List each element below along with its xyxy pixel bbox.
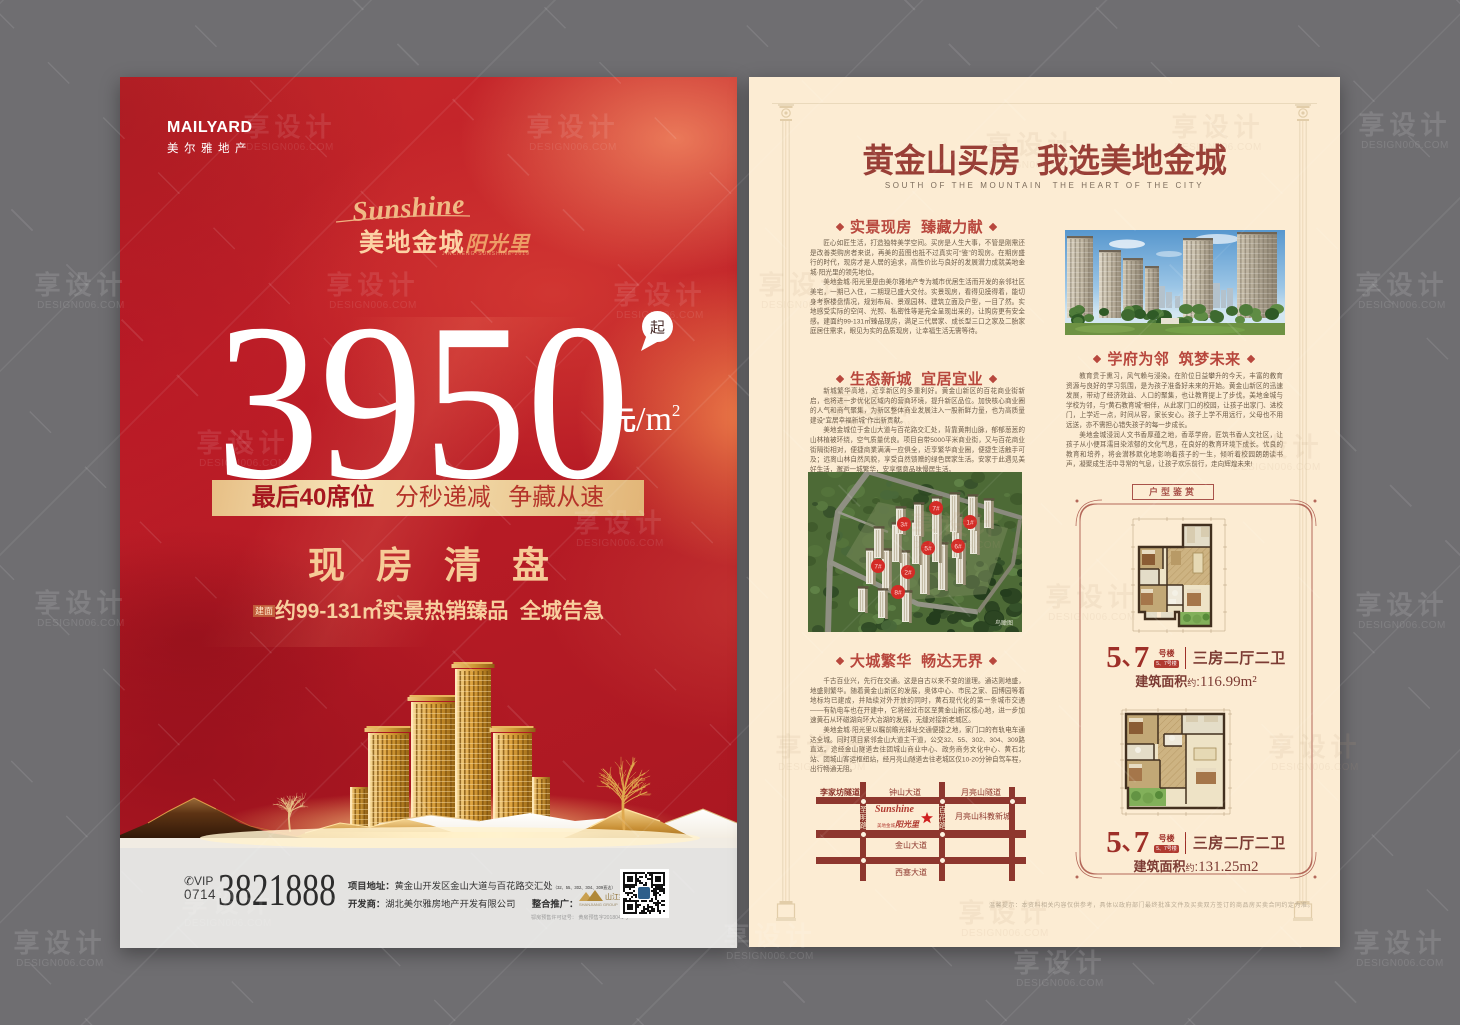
svg-text:7#: 7# bbox=[874, 563, 882, 570]
svg-text:6#: 6# bbox=[954, 543, 962, 550]
svg-text:3#: 3# bbox=[900, 521, 908, 528]
svg-text:7#: 7# bbox=[932, 505, 940, 512]
svg-text:1#: 1# bbox=[966, 519, 974, 526]
svg-text:2#: 2# bbox=[904, 569, 912, 576]
svg-text:起: 起 bbox=[650, 320, 665, 337]
svg-text:3950: 3950 bbox=[216, 307, 630, 492]
svg-text:8#: 8# bbox=[894, 589, 902, 596]
svg-text:鸟瞰图: 鸟瞰图 bbox=[995, 619, 1013, 627]
svg-text:SHANJIANG GROUP: SHANJIANG GROUP bbox=[579, 902, 618, 907]
svg-text:3821888: 3821888 bbox=[218, 864, 336, 915]
svg-text:5#: 5# bbox=[924, 545, 932, 552]
